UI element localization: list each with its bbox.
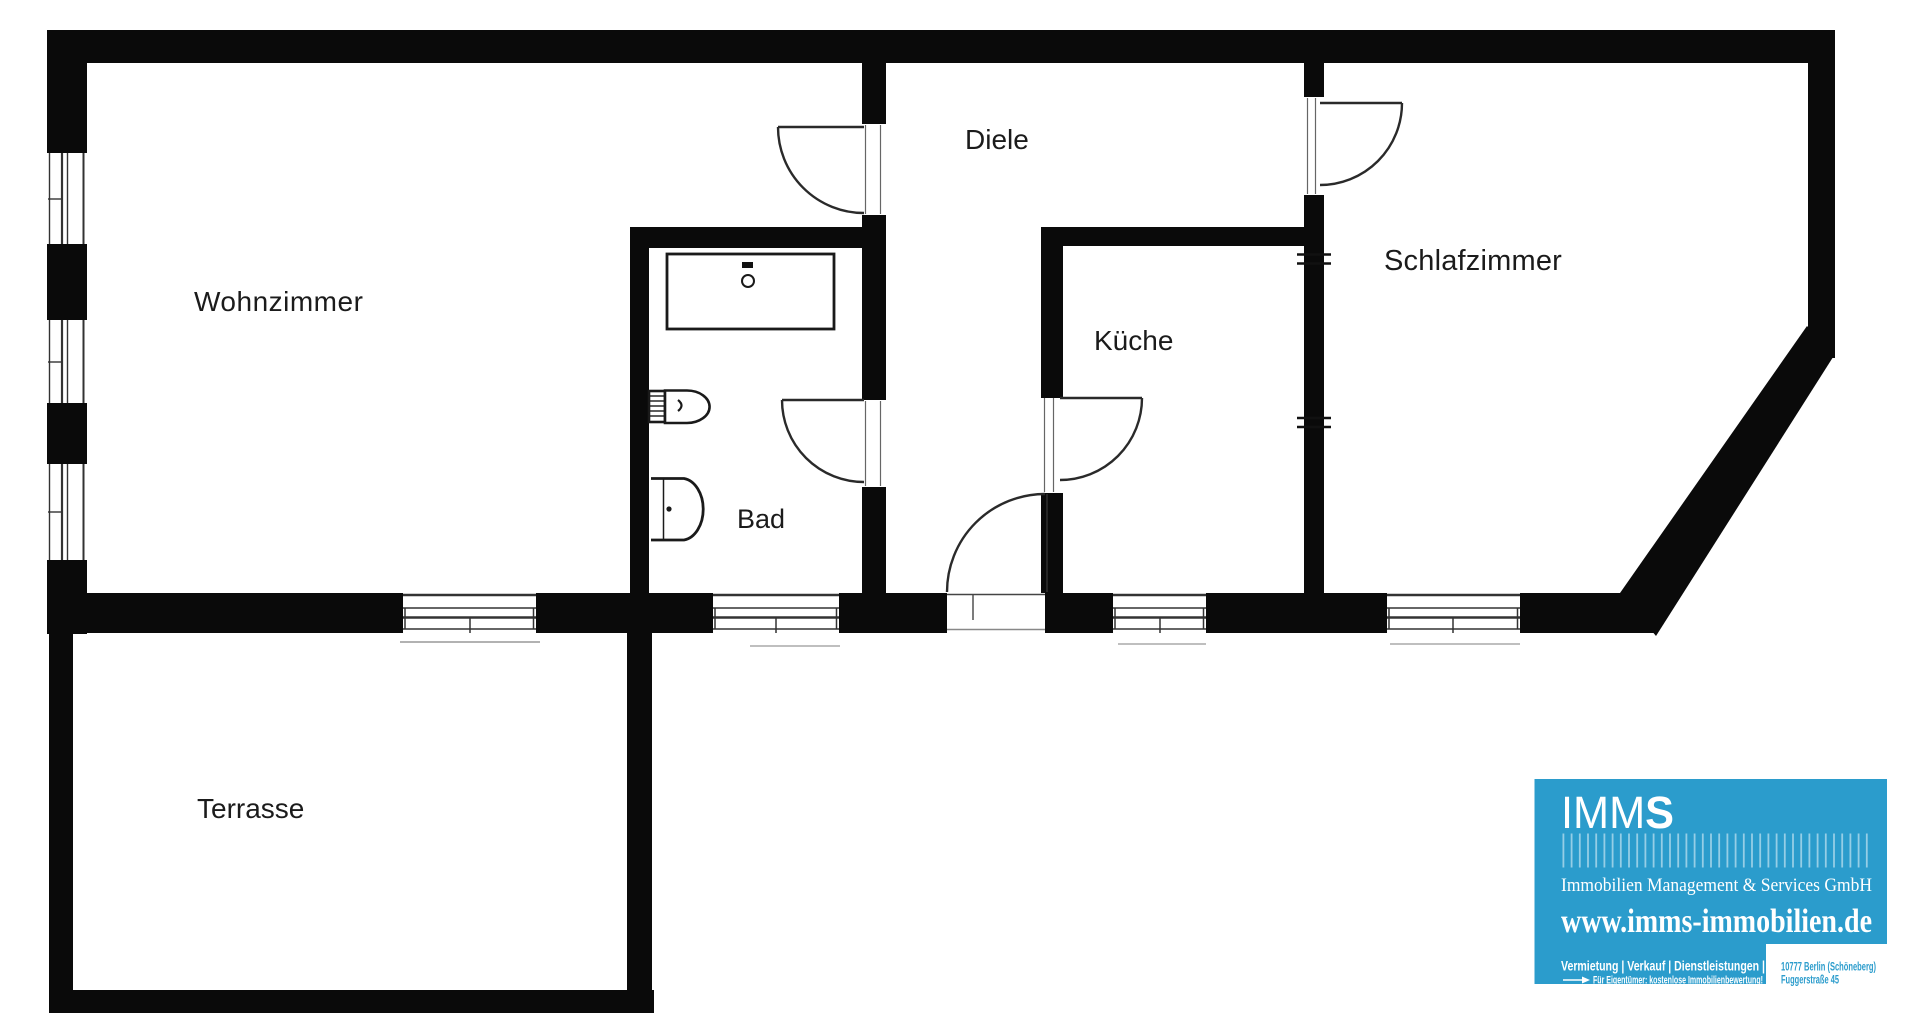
svg-text:Immobilien Management & Servic: Immobilien Management & Services GmbH	[1561, 876, 1872, 896]
svg-text:Wohnzimmer: Wohnzimmer	[194, 286, 363, 317]
svg-text:Diele: Diele	[965, 124, 1029, 155]
svg-text:Bad: Bad	[737, 504, 785, 534]
svg-text:Küche: Küche	[1094, 325, 1173, 356]
svg-text:Vermietung | Verkauf | Dienstl: Vermietung | Verkauf | Dienstleistungen …	[1561, 959, 1765, 974]
svg-text:www.imms-immobilien.de: www.imms-immobilien.de	[1561, 903, 1872, 940]
svg-text:Für Eigentümer: kostenlose Imm: Für Eigentümer: kostenlose Immobilienbew…	[1593, 975, 1763, 987]
svg-text:Schlafzimmer: Schlafzimmer	[1384, 245, 1562, 277]
svg-text:Fuggerstraße 45: Fuggerstraße 45	[1781, 973, 1839, 987]
svg-text:10777 Berlin (Schöneberg): 10777 Berlin (Schöneberg)	[1781, 960, 1876, 974]
svg-text:IMMS: IMMS	[1561, 787, 1674, 838]
svg-text:Terrasse: Terrasse	[197, 793, 304, 824]
